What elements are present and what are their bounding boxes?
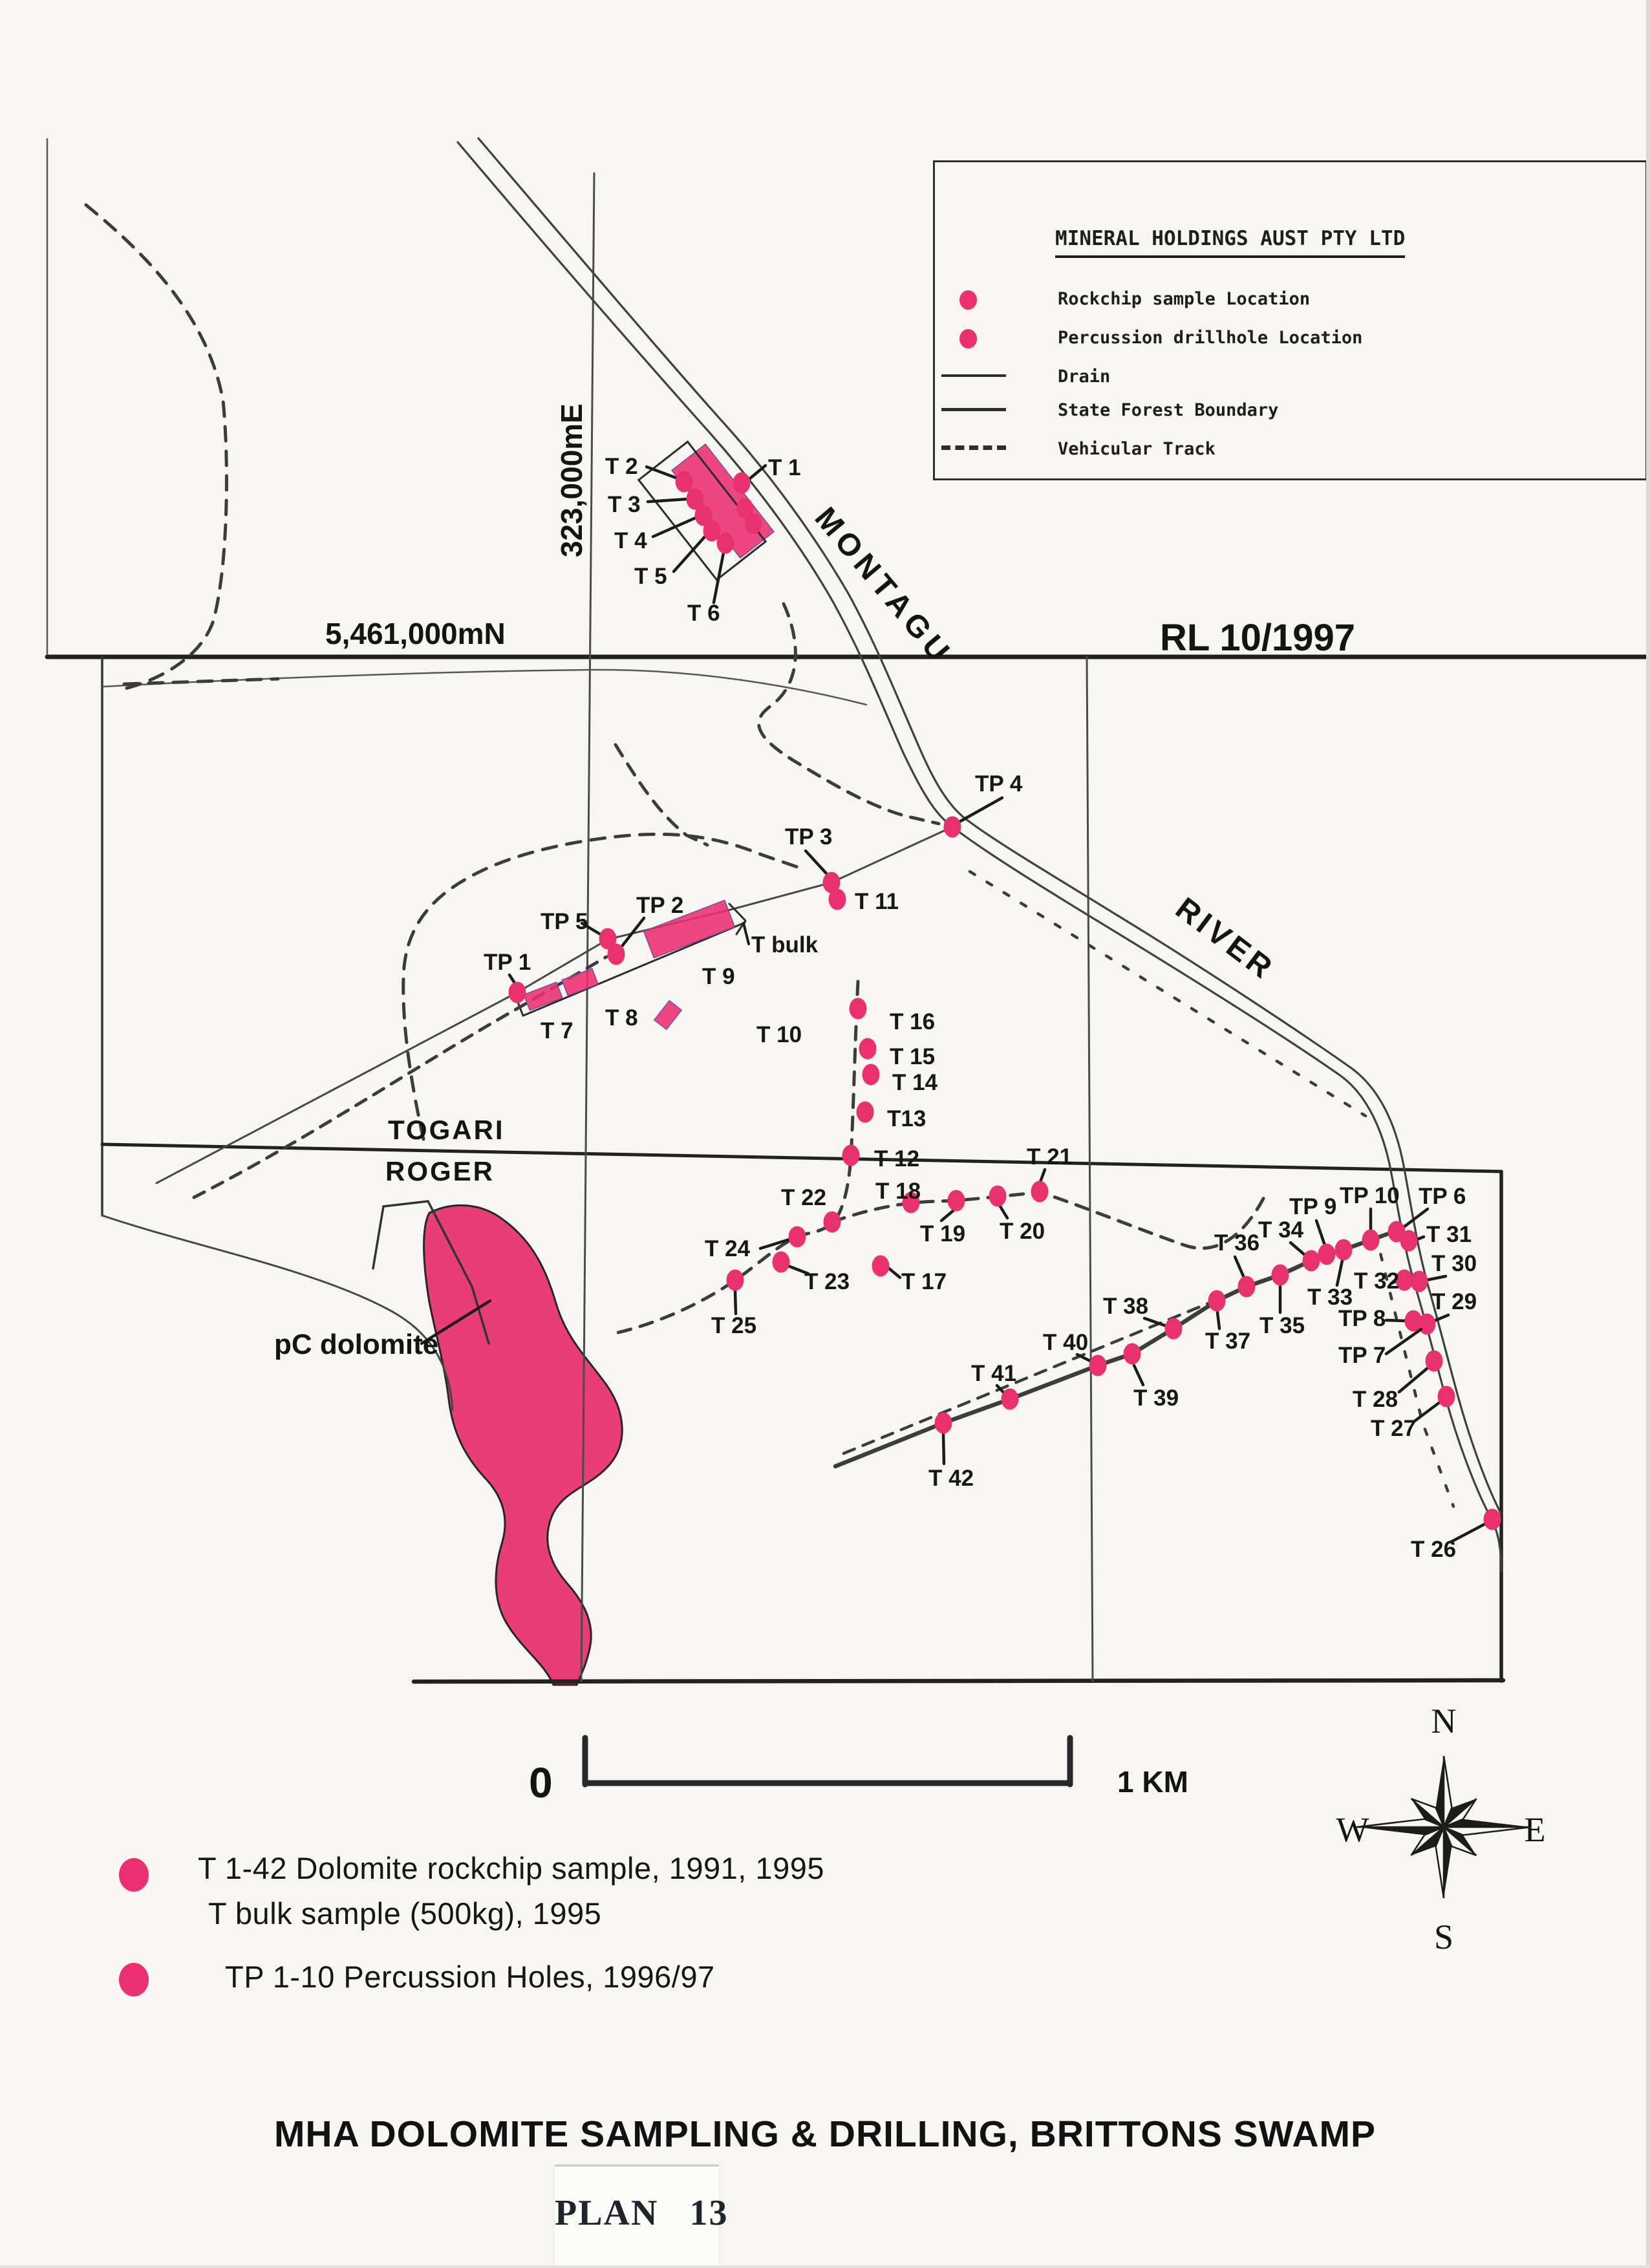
sample-label-T23: T 23 bbox=[804, 1269, 850, 1294]
sample-dot-T28 bbox=[1426, 1351, 1443, 1372]
sample-label-T37: T 37 bbox=[1205, 1329, 1250, 1354]
sample-dot-T2 bbox=[676, 471, 693, 493]
map-text-rl-10-1997: RL 10/1997 bbox=[1160, 617, 1355, 659]
legend-item-label: Rockchip sample Location bbox=[1058, 289, 1310, 309]
footer-legend-rockchip-line1: T 1-42 Dolomite rockchip sample, 1991, 1… bbox=[198, 1850, 824, 1886]
sample-dot-TP9 bbox=[1318, 1244, 1336, 1265]
sample-dot-T25 bbox=[727, 1270, 744, 1291]
sample-dot-T19 bbox=[948, 1190, 965, 1212]
sample-label-T36: T 36 bbox=[1214, 1230, 1259, 1256]
legend-item-drain: Drain bbox=[935, 367, 1645, 392]
leader-T20 bbox=[1000, 1206, 1007, 1218]
sample-dot-T1 bbox=[733, 473, 751, 494]
dashed-track-icon bbox=[941, 445, 1006, 450]
north-drain-line bbox=[103, 670, 866, 705]
sample-label-T1: T 1 bbox=[768, 455, 801, 480]
sample-label-T12: T 12 bbox=[874, 1146, 919, 1171]
sample-dot bbox=[745, 513, 762, 534]
sample-label-TP1: TP 1 bbox=[484, 950, 531, 975]
sample-dot-T26 bbox=[1484, 1509, 1501, 1530]
leader-T42 bbox=[943, 1434, 944, 1464]
sample-label-T30: T 30 bbox=[1431, 1251, 1477, 1276]
sample-label-T27: T 27 bbox=[1371, 1416, 1416, 1441]
legend-item-rockchip: Rockchip sample Location bbox=[935, 289, 1645, 315]
map-text-togari: TOGARI bbox=[388, 1115, 505, 1145]
sample-dot-T24 bbox=[789, 1226, 806, 1248]
sample-dot-T35 bbox=[1272, 1265, 1289, 1286]
sample-label-T17: T 17 bbox=[901, 1269, 947, 1294]
sample-label-T3: T 3 bbox=[608, 492, 641, 517]
sample-label-T11: T 11 bbox=[855, 889, 899, 914]
leader-T25 bbox=[735, 1290, 736, 1314]
sample-label-T22: T 22 bbox=[781, 1185, 826, 1210]
map-text-e: E bbox=[1525, 1810, 1546, 1849]
sample-label-T26: T 26 bbox=[1411, 1537, 1456, 1562]
sample-label-T15: T 15 bbox=[890, 1044, 935, 1069]
leader-T37 bbox=[1217, 1312, 1219, 1329]
legend-item-label: Drain bbox=[1058, 367, 1110, 387]
sample-dot-T14 bbox=[862, 1064, 880, 1086]
rockchip-dot-icon bbox=[119, 1858, 149, 1892]
sample-label-T24: T 24 bbox=[705, 1236, 751, 1261]
sample-dot-T29 bbox=[1419, 1314, 1436, 1335]
leader-T34 bbox=[1291, 1243, 1305, 1255]
rockchip-dot-icon bbox=[959, 290, 977, 310]
map-title: MHA DOLOMITE SAMPLING & DRILLING, BRITTO… bbox=[0, 2113, 1650, 2156]
sample-dot-T33 bbox=[1335, 1239, 1353, 1261]
leader-TP2 bbox=[621, 918, 644, 948]
sample-label-T16: T 16 bbox=[890, 1009, 935, 1034]
sample-dot-T38 bbox=[1165, 1318, 1183, 1340]
legend-title: MINERAL HOLDINGS AUST PTY LTD bbox=[1055, 227, 1405, 258]
sample-label-TP8: TP 8 bbox=[1338, 1306, 1386, 1331]
sample-dot-T21 bbox=[1031, 1181, 1049, 1203]
paper-edge bbox=[0, 2265, 1650, 2268]
leader-T4 bbox=[653, 517, 697, 537]
sample-strip-t10 bbox=[654, 1001, 681, 1030]
leader-T28 bbox=[1399, 1368, 1428, 1392]
leader-T36 bbox=[1235, 1257, 1244, 1278]
sample-dot-T30 bbox=[1411, 1271, 1428, 1292]
sample-dot-T31 bbox=[1400, 1230, 1418, 1252]
leader-T17 bbox=[889, 1268, 900, 1278]
trapezoid-left-line bbox=[373, 1206, 383, 1268]
map-text-w: W bbox=[1336, 1810, 1369, 1849]
map-text-river: RIVER bbox=[1169, 891, 1281, 987]
legend-item-vehicular-track: Vehicular Track bbox=[935, 439, 1645, 465]
sample-dot-T20 bbox=[989, 1186, 1007, 1207]
map-text-323-000me: 323,000mE bbox=[555, 403, 588, 557]
area-label-1: T 9 bbox=[702, 964, 735, 989]
sample-label-T13: T13 bbox=[887, 1106, 926, 1131]
sample-dot-TP1 bbox=[509, 982, 526, 1003]
map-text-1-km: 1 KM bbox=[1117, 1765, 1188, 1799]
sample-label-T14: T 14 bbox=[892, 1070, 938, 1095]
leader-TP7 bbox=[1386, 1329, 1421, 1354]
map-text-5-461-000mn: 5,461,000mN bbox=[325, 617, 506, 650]
sample-dot-T39 bbox=[1124, 1343, 1141, 1365]
paper-edge bbox=[1646, 0, 1650, 2268]
leader-TP9 bbox=[1316, 1221, 1325, 1245]
sample-label-TP5: TP 5 bbox=[541, 909, 588, 934]
forest-hatch-river-track bbox=[970, 872, 1366, 1116]
plan-number-box: PLAN 13 bbox=[555, 2165, 719, 2268]
sample-label-T28: T 28 bbox=[1353, 1387, 1398, 1412]
sample-label-TP4: TP 4 bbox=[975, 771, 1023, 797]
sample-label-T4: T 4 bbox=[614, 528, 647, 553]
bottom-border-line bbox=[414, 1680, 1503, 1682]
sample-label-T35: T 35 bbox=[1259, 1313, 1305, 1338]
legend-item-percussion: Percussion drillhole Location bbox=[935, 328, 1645, 354]
sample-dot-TP2 bbox=[608, 944, 625, 965]
leader-T30 bbox=[1426, 1276, 1446, 1280]
sample-dot-T41 bbox=[1002, 1389, 1019, 1410]
sample-dot-T36 bbox=[1238, 1276, 1256, 1298]
legend-item-label: State Forest Boundary bbox=[1058, 400, 1278, 420]
sample-label-T21: T 21 bbox=[1027, 1144, 1072, 1170]
area-label-2: T 7 bbox=[541, 1018, 573, 1043]
map-text-0: 0 bbox=[529, 1759, 553, 1806]
sample-dot-T16 bbox=[850, 998, 867, 1020]
leader-T19 bbox=[941, 1210, 954, 1221]
sample-label-T32: T 32 bbox=[1354, 1268, 1399, 1294]
area-label-0: T bulk bbox=[751, 932, 819, 957]
easting-gridline-2-line bbox=[1087, 657, 1093, 1681]
legend-item-label: Vehicular Track bbox=[1058, 439, 1216, 459]
leader-TP3 bbox=[806, 851, 827, 874]
track-topleft-track bbox=[86, 205, 226, 690]
map-legend-box: MINERAL HOLDINGS AUST PTY LTD Rockchip s… bbox=[933, 160, 1647, 480]
sample-label-T39: T 39 bbox=[1133, 1385, 1179, 1411]
trapezoid-top-line bbox=[383, 1201, 428, 1206]
sample-label-T19: T 19 bbox=[920, 1221, 965, 1246]
track-north-track bbox=[124, 679, 278, 684]
sample-label-TP7: TP 7 bbox=[1338, 1343, 1386, 1368]
sample-label-T29: T 29 bbox=[1431, 1289, 1477, 1314]
map-text-s: S bbox=[1434, 1918, 1453, 1956]
sample-label-T41: T 41 bbox=[971, 1361, 1016, 1386]
sample-label-T6: T 6 bbox=[687, 601, 720, 626]
sample-label-T42: T 42 bbox=[928, 1466, 974, 1491]
area-label-4: T 10 bbox=[756, 1022, 802, 1047]
leader-T39 bbox=[1134, 1365, 1143, 1385]
track-mid-west-track bbox=[403, 834, 803, 1139]
leader-T5 bbox=[674, 535, 706, 572]
map-text-n: N bbox=[1431, 1702, 1457, 1740]
sample-dot-TP10 bbox=[1362, 1230, 1380, 1251]
plan-number: 13 bbox=[689, 2193, 728, 2233]
sample-dot-T23 bbox=[773, 1252, 790, 1273]
sample-dot-T6 bbox=[717, 533, 734, 554]
footer-legend-rockchip-line2: T bulk sample (500kg), 1995 bbox=[208, 1896, 601, 1931]
sample-label-T38: T 38 bbox=[1103, 1294, 1148, 1319]
sample-dot-TP4 bbox=[944, 817, 961, 838]
sample-label-T31: T 31 bbox=[1426, 1222, 1472, 1247]
sample-dot-T13 bbox=[857, 1102, 874, 1123]
sample-label-TP2: TP 2 bbox=[636, 893, 683, 918]
percussion-dot-icon bbox=[959, 329, 977, 348]
area-label-3: T 8 bbox=[605, 1005, 638, 1031]
leader-T33 bbox=[1337, 1261, 1342, 1285]
scanned-map-page: T 1T 2T 3T 4T 5T 6TP 1TP 5TP 2TP 3T 11TP… bbox=[0, 0, 1650, 2268]
tbulk-leader-line bbox=[744, 923, 749, 944]
sample-dot-T17 bbox=[872, 1256, 890, 1277]
sample-dot-T22 bbox=[824, 1212, 841, 1233]
sample-dot-T37 bbox=[1208, 1290, 1226, 1312]
sample-label-TP3: TP 3 bbox=[785, 824, 832, 850]
leader-T1 bbox=[750, 465, 766, 478]
pc-dolomite-body bbox=[424, 1205, 623, 1685]
sample-label-T20: T 20 bbox=[1000, 1219, 1045, 1244]
sample-label-T2: T 2 bbox=[605, 454, 638, 479]
sample-label-T34: T 34 bbox=[1258, 1217, 1304, 1243]
sample-dot-T11 bbox=[829, 889, 846, 910]
leader-TP4 bbox=[959, 798, 1002, 822]
togari-boundary-line bbox=[102, 1144, 1501, 1171]
boundary-line-icon bbox=[941, 408, 1006, 411]
leader-T31 bbox=[1417, 1237, 1424, 1239]
sample-strip-t7 bbox=[524, 982, 562, 1011]
plan-label: PLAN 13 bbox=[555, 2192, 719, 2234]
sw-curve-line bbox=[102, 1215, 453, 1409]
leader-T21 bbox=[1040, 1170, 1045, 1182]
sample-dot-T34 bbox=[1303, 1250, 1320, 1272]
track-upper-a-track bbox=[616, 745, 707, 845]
map-text-pc-dolomite: pC dolomite bbox=[274, 1329, 438, 1360]
sample-label-TP6: TP 6 bbox=[1419, 1184, 1466, 1209]
drain-line-icon bbox=[941, 374, 1006, 377]
plan-word: PLAN bbox=[555, 2193, 658, 2233]
sample-label-TP9: TP 9 bbox=[1289, 1194, 1336, 1219]
sample-dot-T27 bbox=[1438, 1386, 1455, 1407]
sample-label-TP10: TP 10 bbox=[1340, 1183, 1400, 1208]
sample-dot-T40 bbox=[1089, 1355, 1107, 1376]
legend-item-label: Percussion drillhole Location bbox=[1058, 328, 1362, 348]
leader-TP6 bbox=[1404, 1209, 1428, 1227]
sample-label-T18: T 18 bbox=[875, 1179, 921, 1204]
sample-label-T40: T 40 bbox=[1043, 1330, 1088, 1355]
sample-label-T25: T 25 bbox=[711, 1313, 756, 1338]
sample-label-T5: T 5 bbox=[634, 564, 667, 589]
sample-dot-T15 bbox=[859, 1038, 877, 1060]
percussion-dot-icon bbox=[119, 1963, 149, 1996]
legend-item-forest-boundary: State Forest Boundary bbox=[935, 400, 1645, 426]
map-text-roger: ROGER bbox=[385, 1156, 495, 1186]
leader-TP8 bbox=[1386, 1320, 1406, 1321]
sample-dot-T12 bbox=[842, 1145, 860, 1166]
sample-dot-T42 bbox=[935, 1413, 952, 1434]
map-text-montagu: MONTAGU bbox=[808, 501, 959, 672]
footer-legend-percussion-line1: TP 1-10 Percussion Holes, 1996/97 bbox=[225, 1959, 715, 1995]
